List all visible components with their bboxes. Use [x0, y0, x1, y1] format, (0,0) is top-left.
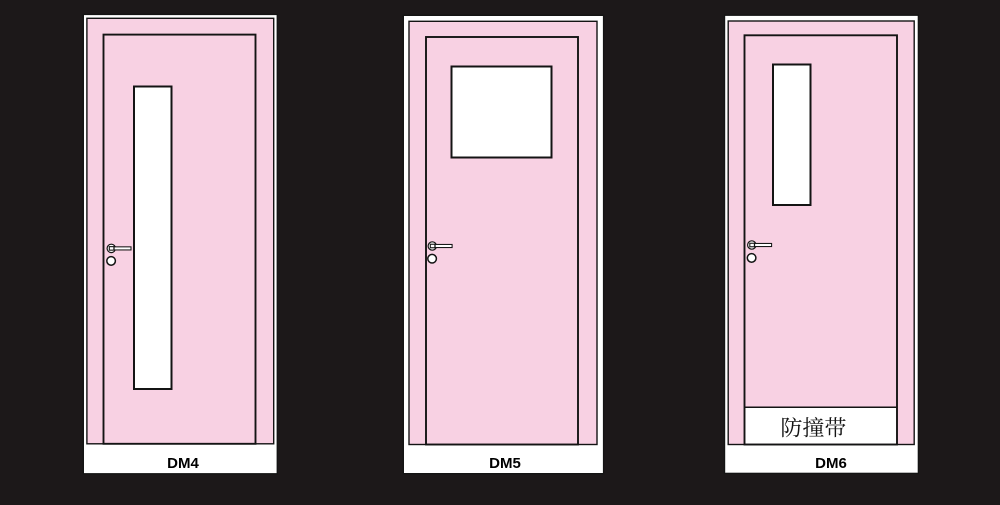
svg-text:DM4: DM4 — [167, 455, 199, 472]
svg-text:DM6: DM6 — [815, 455, 847, 472]
svg-text:DM5: DM5 — [489, 455, 521, 472]
